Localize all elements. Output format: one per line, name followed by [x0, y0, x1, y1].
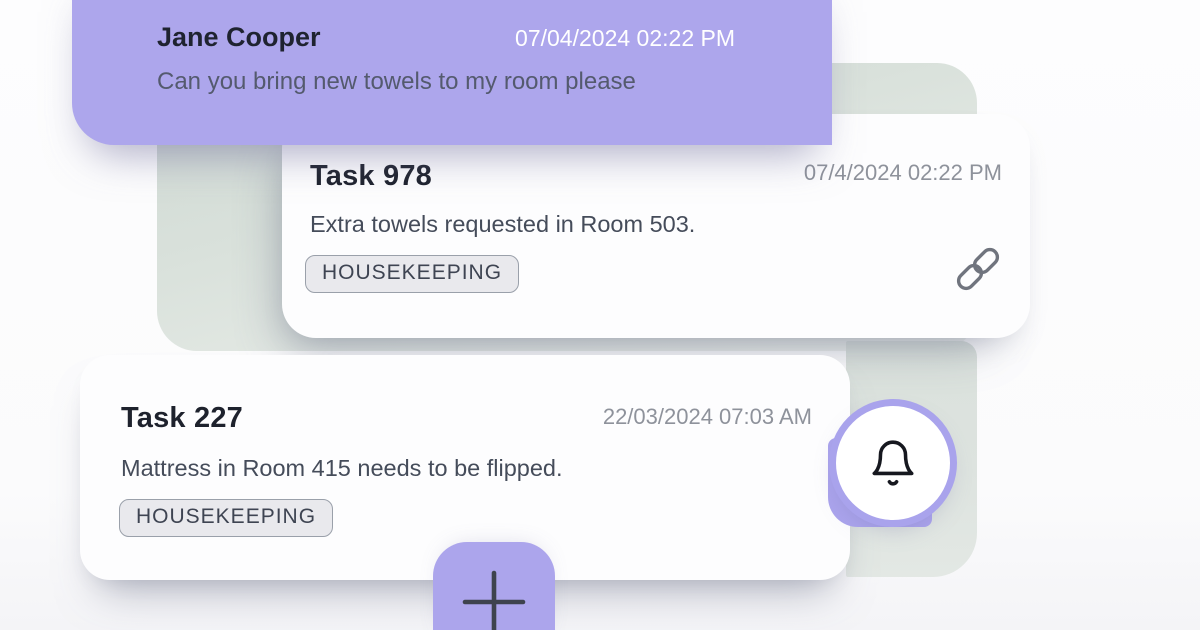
chat-notification-bubble[interactable]: Jane Cooper 07/04/2024 02:22 PM Can you …	[72, 0, 832, 145]
task-title: Task 978	[310, 160, 432, 193]
task-timestamp: 22/03/2024 07:03 AM	[603, 404, 812, 430]
housekeeping-badge: HOUSEKEEPING	[305, 255, 519, 293]
message-timestamp: 07/04/2024 02:22 PM	[515, 25, 735, 52]
bell-icon	[868, 438, 918, 488]
link-icon[interactable]	[954, 245, 1002, 293]
task-description: Mattress in Room 415 needs to be flipped…	[121, 455, 563, 482]
housekeeping-badge: HOUSEKEEPING	[119, 499, 333, 537]
sender-name: Jane Cooper	[157, 22, 321, 53]
message-text: Can you bring new towels to my room plea…	[157, 68, 636, 96]
task-title: Task 227	[121, 402, 243, 435]
task-app-mockup: Task 978 07/4/2024 02:22 PM Extra towels…	[0, 0, 1200, 630]
task-card-978[interactable]: Task 978 07/4/2024 02:22 PM Extra towels…	[282, 114, 1030, 338]
add-task-button[interactable]	[433, 542, 555, 630]
task-description: Extra towels requested in Room 503.	[310, 211, 695, 238]
notification-button[interactable]	[829, 399, 957, 527]
plus-icon	[461, 542, 527, 630]
task-timestamp: 07/4/2024 02:22 PM	[804, 160, 1002, 186]
